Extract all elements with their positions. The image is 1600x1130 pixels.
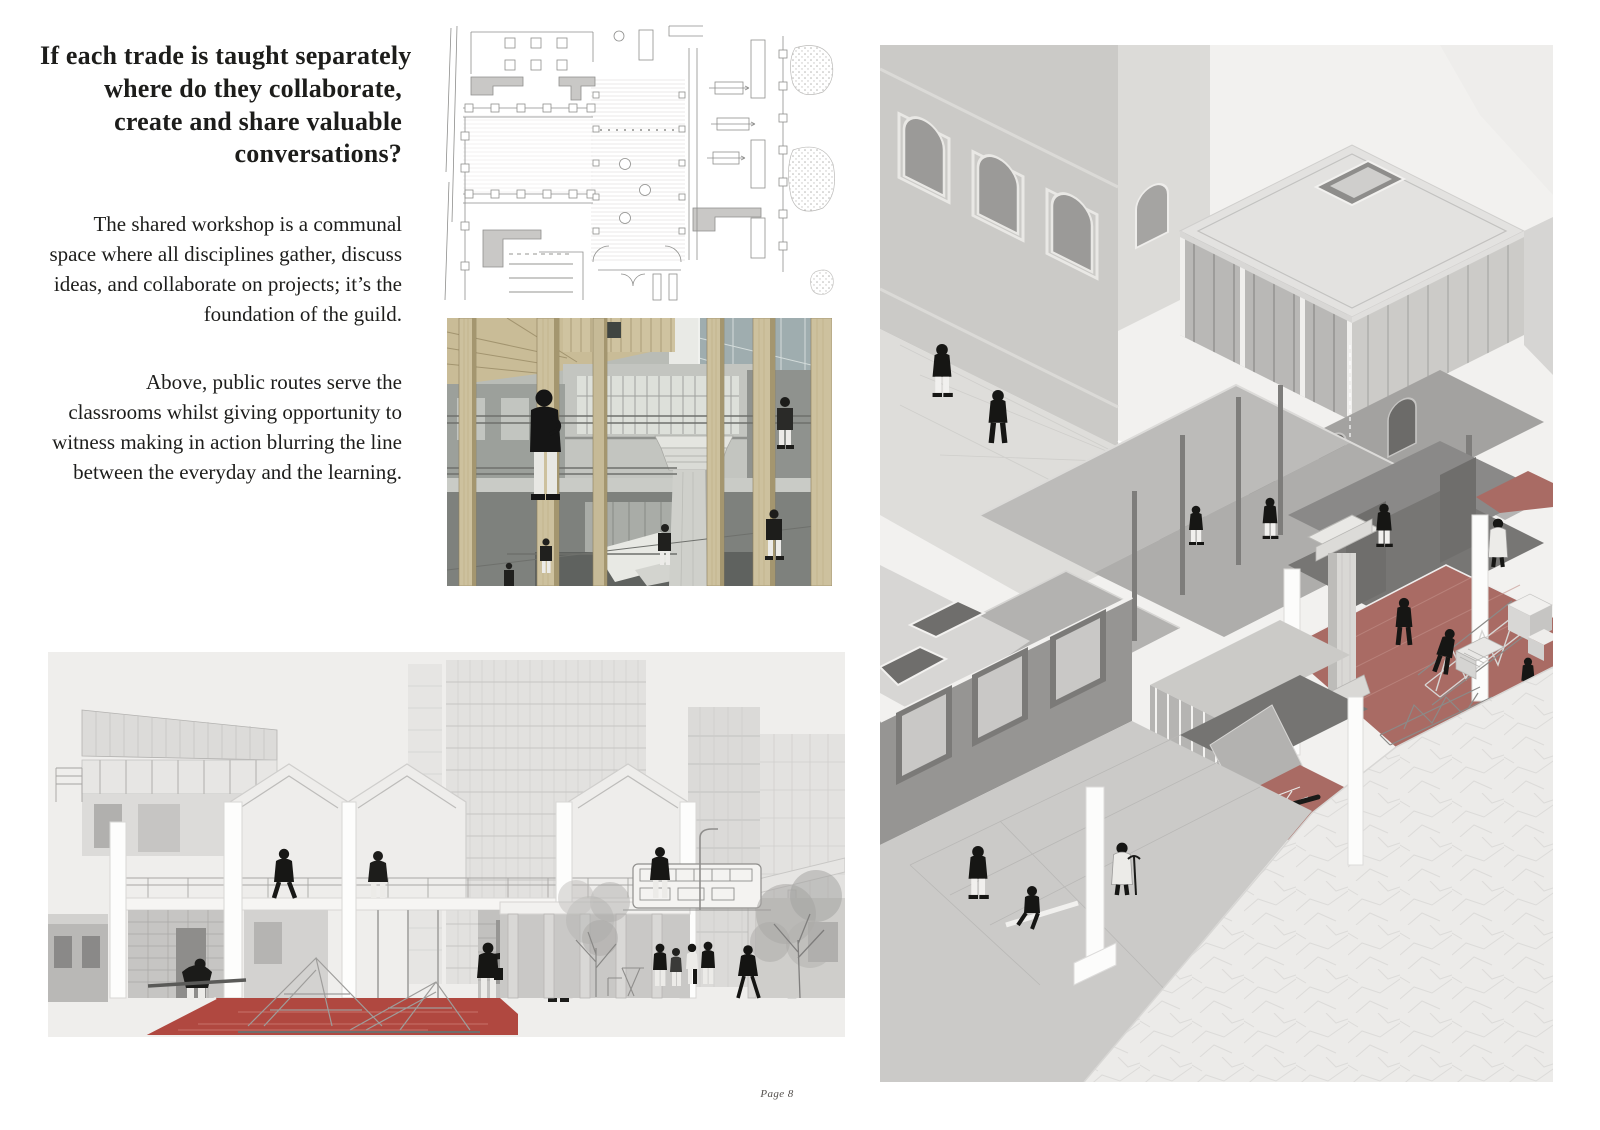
atrium-back-wall xyxy=(563,364,755,484)
para-line: Above, public routes serve the xyxy=(40,367,402,397)
heading-line: create and share valuable xyxy=(40,106,402,139)
para-line: witness making in action blurring the li… xyxy=(40,427,402,457)
para-line: between the everyday and the learning. xyxy=(40,457,402,487)
heading-line: conversations? xyxy=(40,138,402,171)
page-heading: If each trade is taught separately where… xyxy=(40,40,402,171)
heading-line: where do they collaborate, xyxy=(40,73,402,106)
body-paragraph-1: The shared workshop is a communal space … xyxy=(40,209,402,329)
double-decker-bus xyxy=(623,864,771,910)
far-left-building xyxy=(48,914,108,1002)
street-section-drawing xyxy=(48,652,845,1037)
para-line: space where all disciplines gather, disc… xyxy=(40,239,402,269)
text-column: If each trade is taught separately where… xyxy=(40,40,402,487)
page-number: Page 8 xyxy=(712,1088,842,1100)
heading-line: If each trade is taught separately xyxy=(40,40,402,73)
para-line: foundation of the guild. xyxy=(40,299,402,329)
para-line: classrooms whilst giving opportunity to xyxy=(40,397,402,427)
street-section-figure xyxy=(48,652,845,1037)
courtyard-paving xyxy=(591,77,685,262)
isometric-cutaway-drawing xyxy=(880,45,1553,1082)
body-paragraph-2: Above, public routes serve the classroom… xyxy=(40,367,402,487)
workshop-interior-figure xyxy=(447,318,832,586)
isometric-cutaway-figure xyxy=(880,45,1553,1082)
floor-plan-figure xyxy=(443,22,835,302)
workshop-interior-render xyxy=(447,318,832,586)
room-paving xyxy=(463,114,593,194)
floor-plan-drawing xyxy=(443,22,835,302)
para-line: ideas, and collaborate on projects; it’s… xyxy=(40,269,402,299)
timber-facade xyxy=(563,318,675,352)
para-line: The shared workshop is a communal xyxy=(40,209,402,239)
